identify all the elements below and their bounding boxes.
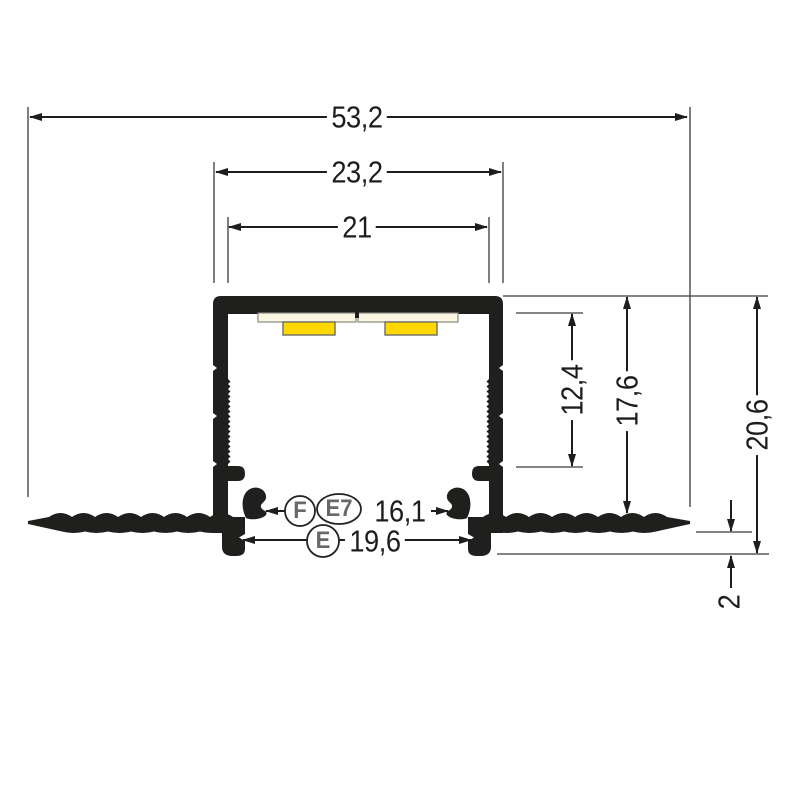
- arrow-21-right: [475, 223, 488, 231]
- dimension-hook-opening: 19,6: [345, 526, 405, 557]
- marker-label-e7: E7: [325, 497, 352, 521]
- dimension-body-height: 17,6: [612, 371, 643, 431]
- arrow-20-6-bottom: [753, 541, 761, 554]
- drywall-hook-right: [468, 517, 491, 556]
- arrow-21-left: [228, 223, 241, 231]
- drywall-hook-left: [222, 517, 245, 556]
- led-module-right: [385, 322, 437, 335]
- led-pcb-right: [358, 313, 458, 322]
- arrow-23-2-right: [489, 168, 502, 176]
- dimension-overall-height: 20,6: [742, 395, 773, 455]
- marker-label-e: E: [316, 529, 331, 553]
- dimension-body-inner-width: 21: [338, 212, 376, 243]
- dimension-inner-depth: 12,4: [557, 360, 588, 420]
- dimension-overall-width: 53,2: [327, 102, 387, 133]
- arrow-17-6-top: [623, 296, 631, 309]
- arrow-12-4-top: [568, 313, 576, 326]
- marker-label-f: F: [293, 499, 306, 523]
- arrow-53-2-left: [29, 113, 42, 121]
- technical-drawing-led-profile-cross-section: 53,2 23,2 21 12,4 17,6 20,6 2 16,1 19,6 …: [0, 0, 800, 800]
- arrow-17-6-bottom: [623, 501, 631, 514]
- led-pcb-left: [258, 313, 356, 322]
- dimension-clip-opening: 16,1: [370, 496, 430, 527]
- pcb-center-tick: [355, 312, 359, 318]
- dimension-body-outer-width: 23,2: [327, 157, 387, 188]
- arrow-2-top: [727, 519, 735, 532]
- arrow-20-6-top: [753, 296, 761, 309]
- arrow-16-1-left: [265, 507, 278, 515]
- spring-clip-left: [243, 488, 267, 520]
- arrow-12-4-bottom: [568, 454, 576, 467]
- arrow-23-2-left: [215, 168, 228, 176]
- spring-clip-right: [446, 488, 470, 520]
- mounting-flange-right: [483, 513, 690, 533]
- arrow-2-bottom: [727, 555, 735, 568]
- dimension-flange-edge-offset: 2: [714, 590, 745, 614]
- arrow-53-2-right: [675, 113, 688, 121]
- led-module-left: [283, 322, 335, 335]
- mounting-flange-left: [28, 513, 233, 533]
- drawing-geometry: [0, 0, 800, 800]
